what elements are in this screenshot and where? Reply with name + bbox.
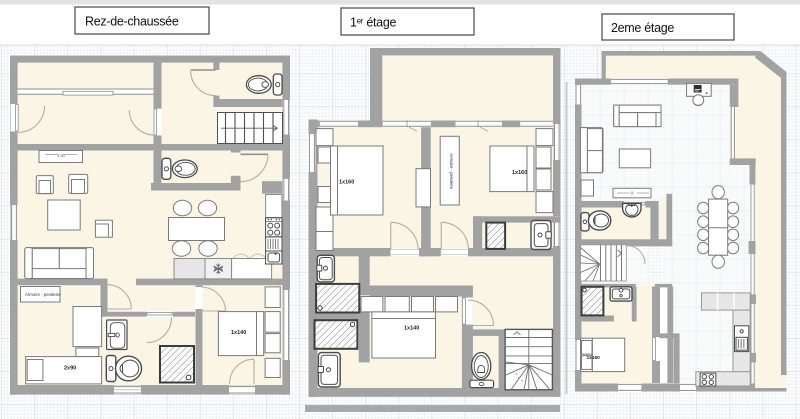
svg-text:1x160: 1x160 [339,180,354,186]
svg-text:2eme étage: 2eme étage [611,21,674,35]
svg-text:1,50: 1,50 [57,153,66,158]
svg-text:Armoire - penderie: Armoire - penderie [25,292,61,297]
svg-text:Rez-de-chaussée: Rez-de-chaussée [85,15,179,29]
svg-text:1x140: 1x140 [404,326,419,332]
svg-text:1x160: 1x160 [587,355,601,361]
svg-text:1x140: 1x140 [231,330,246,336]
svg-text:1x160: 1x160 [512,170,527,176]
svg-text:Armoire - penderie: Armoire - penderie [449,153,454,189]
svg-text:2x90: 2x90 [64,366,76,372]
